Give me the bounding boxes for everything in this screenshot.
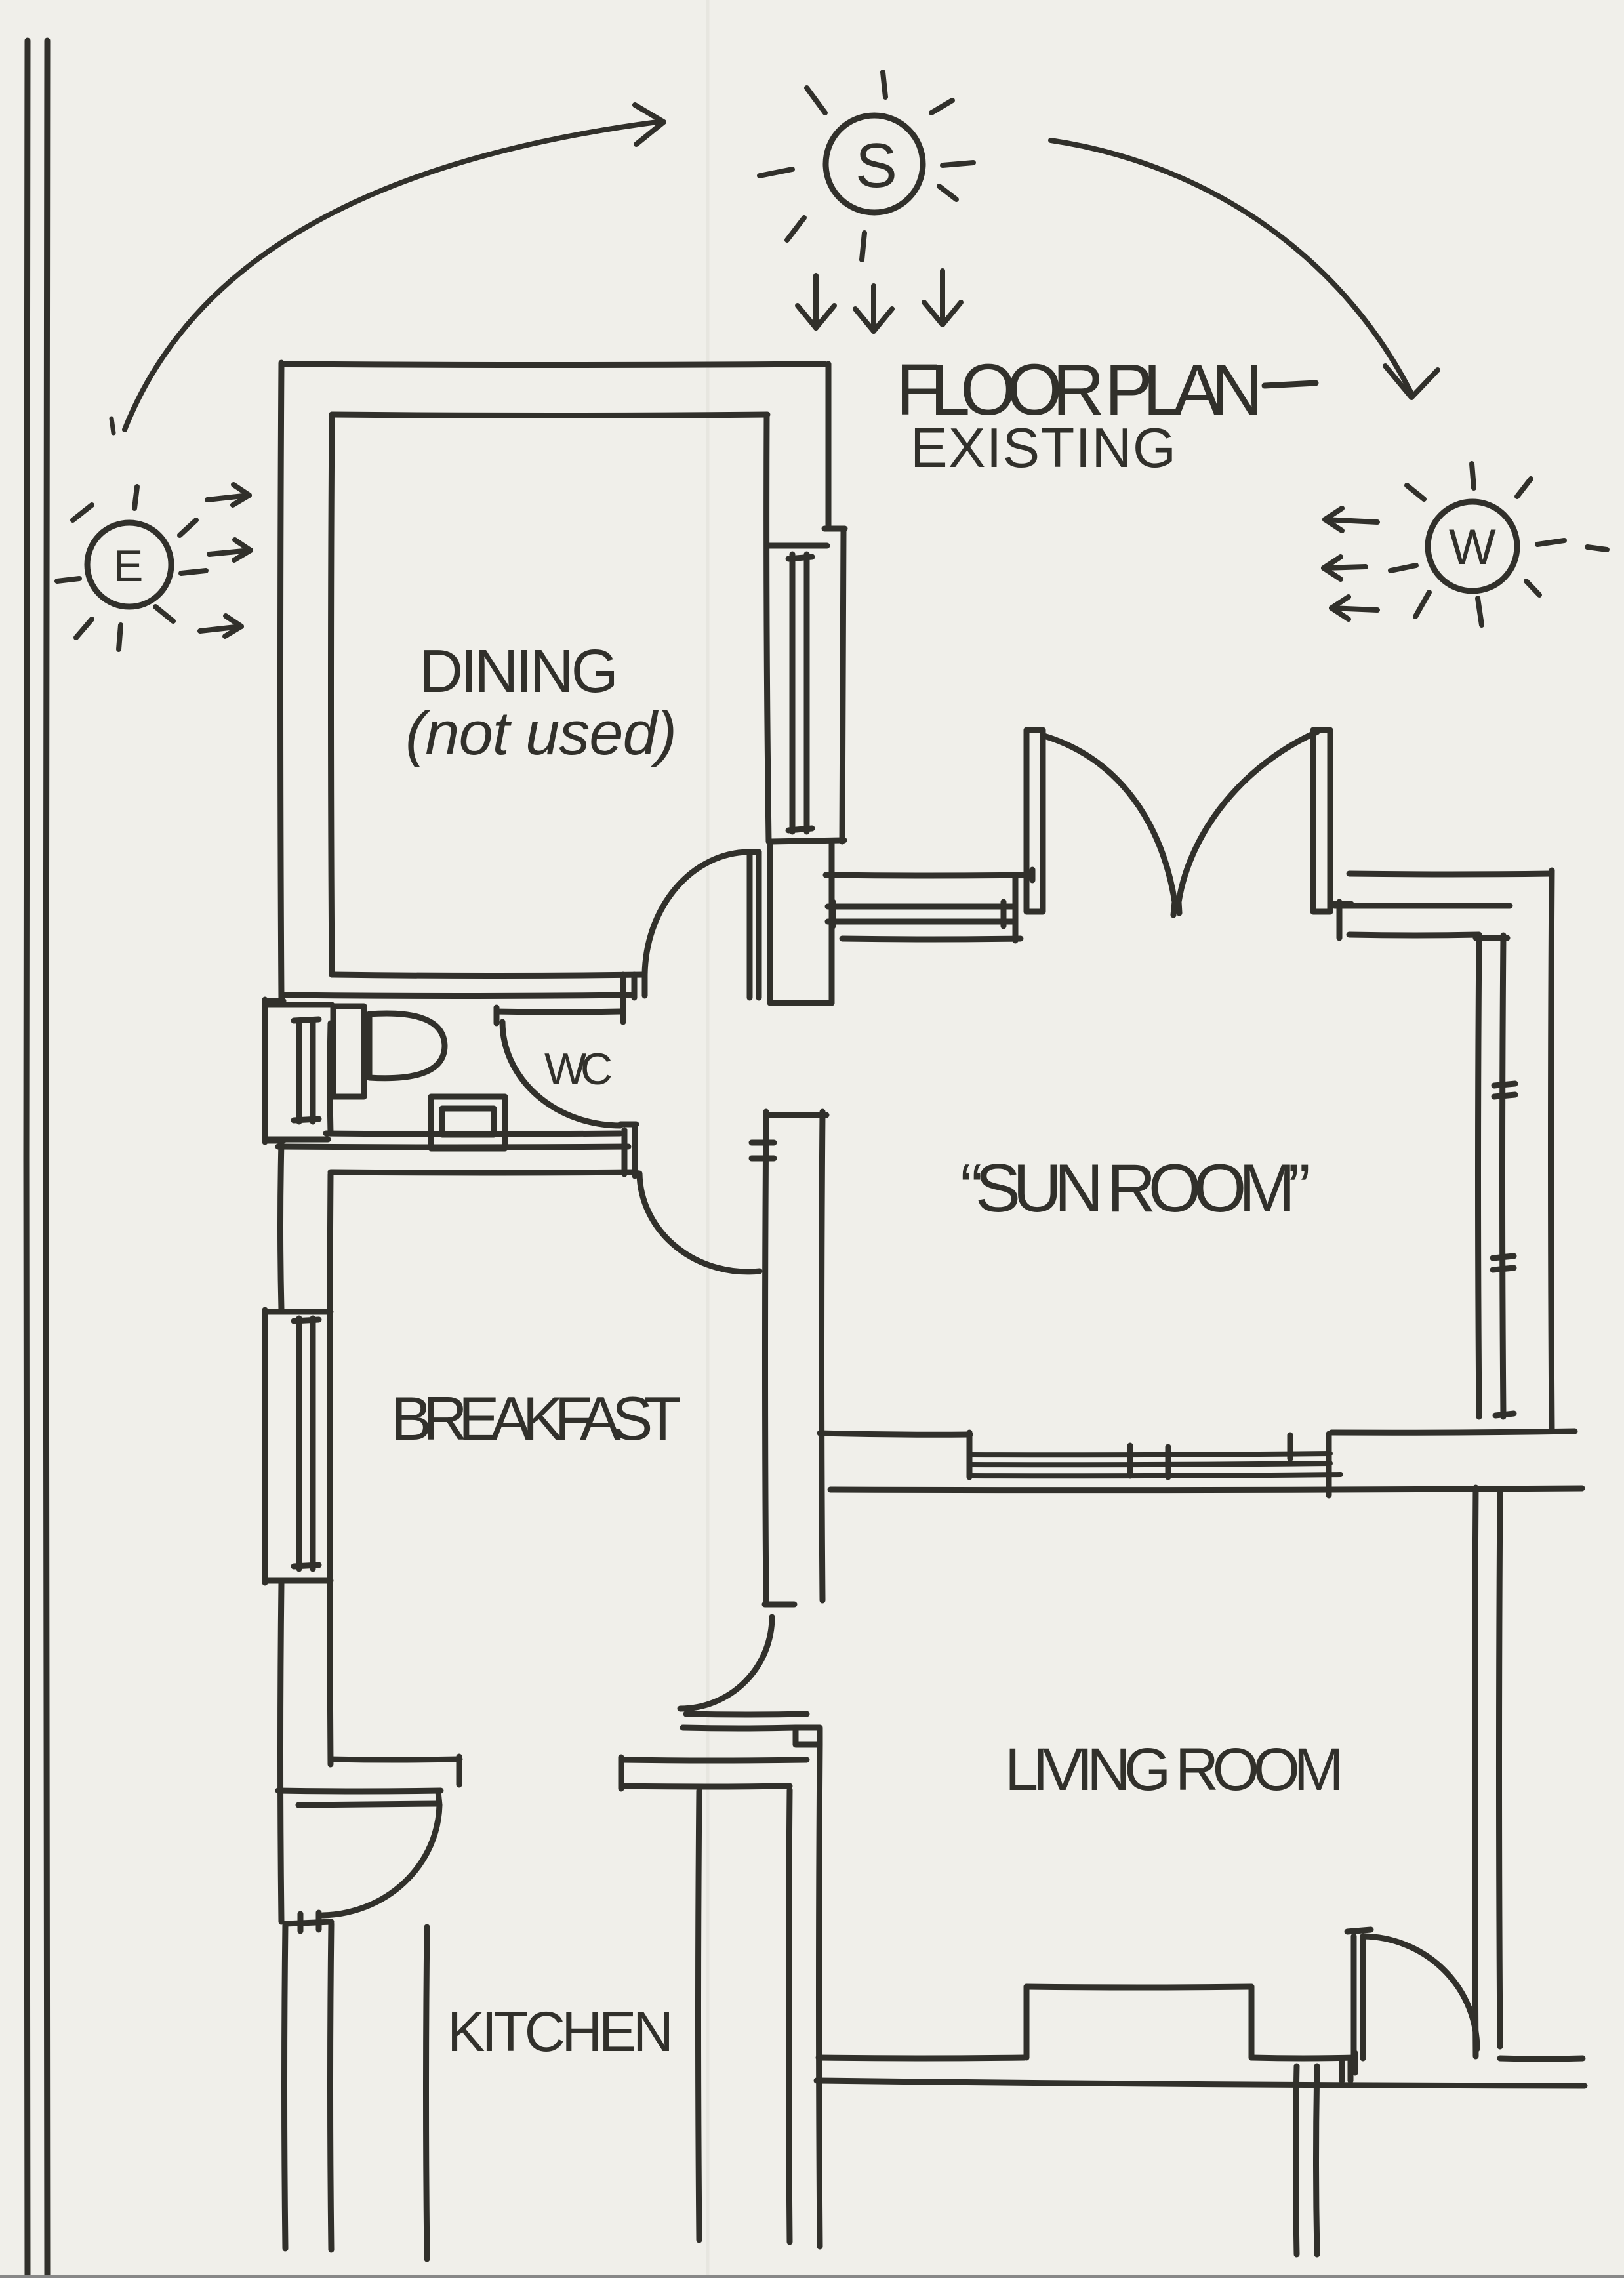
svg-text:EXISTING: EXISTING xyxy=(910,417,1176,479)
svg-text:(not used): (not used) xyxy=(405,699,677,767)
svg-text:BREAKFAST: BREAKFAST xyxy=(391,1384,681,1453)
svg-text:W: W xyxy=(1449,519,1496,575)
svg-text:KITCHEN: KITCHEN xyxy=(447,2001,674,2064)
svg-text:“SUN ROOM”: “SUN ROOM” xyxy=(960,1150,1310,1227)
svg-text:E: E xyxy=(113,541,143,591)
svg-text:WC: WC xyxy=(544,1044,613,1094)
svg-text:LIVING ROOM: LIVING ROOM xyxy=(1005,1736,1344,1803)
svg-text:DINING: DINING xyxy=(419,637,619,705)
svg-text:S: S xyxy=(855,131,897,201)
